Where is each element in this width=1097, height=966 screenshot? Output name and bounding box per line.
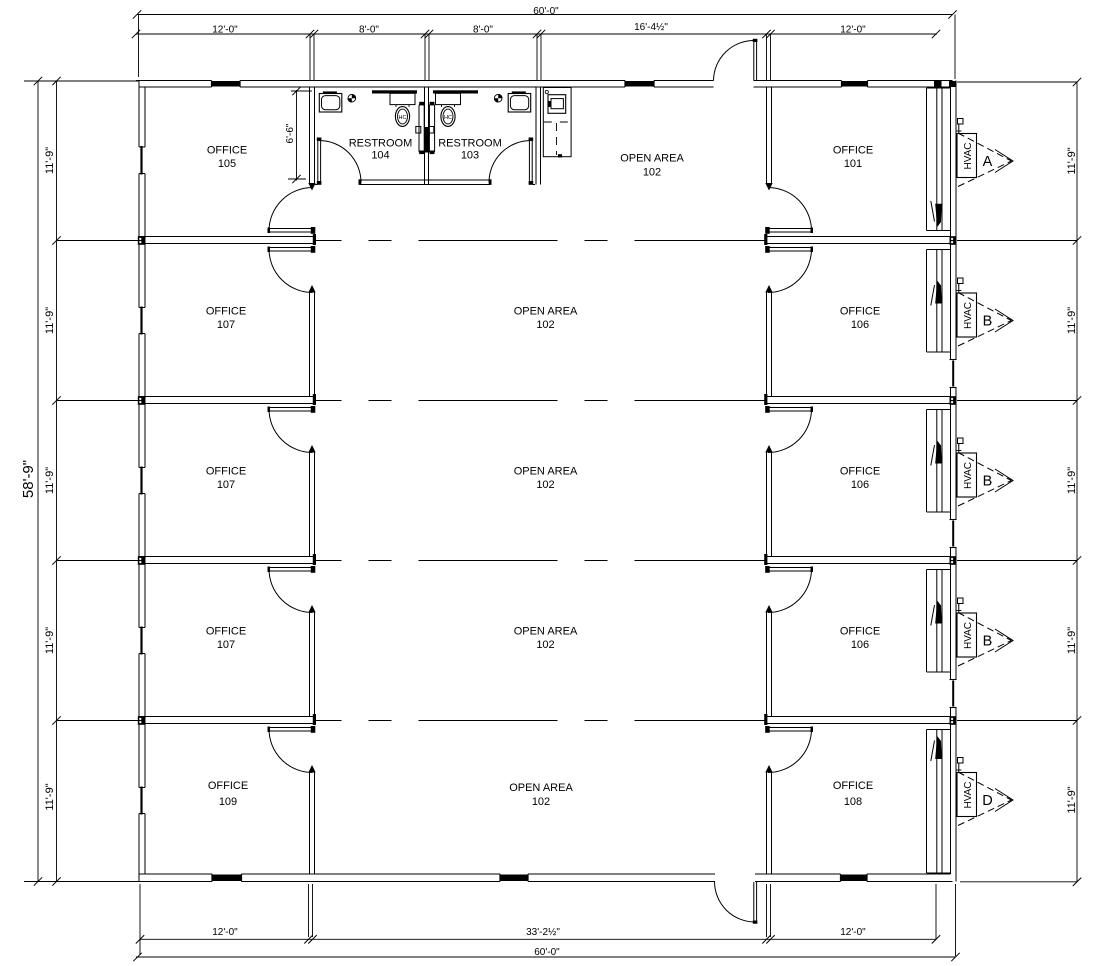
svg-text:OFFICE: OFFICE <box>207 145 247 157</box>
svg-text:OFFICE: OFFICE <box>840 626 880 638</box>
svg-text:102: 102 <box>536 479 554 491</box>
svg-text:11'-9": 11'-9" <box>44 147 56 174</box>
svg-text:8'-0": 8'-0" <box>359 25 379 36</box>
svg-text:103: 103 <box>461 150 479 162</box>
svg-text:106: 106 <box>851 479 869 491</box>
svg-text:B: B <box>983 314 993 330</box>
svg-text:107: 107 <box>217 639 235 651</box>
svg-text:OPEN AREA: OPEN AREA <box>514 306 578 318</box>
svg-text:HVAC: HVAC <box>963 142 974 169</box>
svg-text:102: 102 <box>536 639 554 651</box>
svg-text:105: 105 <box>218 158 236 170</box>
svg-text:106: 106 <box>851 319 869 331</box>
svg-text:11'-9": 11'-9" <box>44 307 56 334</box>
svg-text:HVAC: HVAC <box>963 781 974 808</box>
svg-text:OFFICE: OFFICE <box>840 466 880 478</box>
svg-text:HVAC: HVAC <box>963 462 974 489</box>
svg-text:11'-9": 11'-9" <box>44 783 56 810</box>
svg-text:107: 107 <box>217 479 235 491</box>
svg-text:RESTROOM: RESTROOM <box>438 138 502 150</box>
svg-text:60'-0": 60'-0" <box>534 947 560 958</box>
svg-text:OFFICE: OFFICE <box>208 780 248 792</box>
svg-text:HC: HC <box>444 115 452 121</box>
svg-text:OFFICE: OFFICE <box>206 466 246 478</box>
svg-text:12'-0": 12'-0" <box>212 927 238 938</box>
svg-text:OPEN AREA: OPEN AREA <box>509 782 573 794</box>
svg-text:106: 106 <box>851 639 869 651</box>
svg-text:11'-9": 11'-9" <box>1066 467 1078 494</box>
svg-text:D: D <box>982 793 992 809</box>
svg-text:8'-0": 8'-0" <box>473 25 493 36</box>
svg-text:HVAC: HVAC <box>963 622 974 649</box>
svg-text:11'-9": 11'-9" <box>1066 627 1078 654</box>
svg-text:B: B <box>983 474 993 490</box>
svg-text:16'-4½": 16'-4½" <box>634 22 668 33</box>
svg-text:107: 107 <box>217 319 235 331</box>
svg-text:58'-9": 58'-9" <box>20 460 37 498</box>
svg-text:OFFICE: OFFICE <box>840 306 880 318</box>
svg-text:OFFICE: OFFICE <box>833 780 873 792</box>
svg-text:RESTROOM: RESTROOM <box>349 138 413 150</box>
svg-text:12'-0": 12'-0" <box>840 927 866 938</box>
svg-text:109: 109 <box>219 796 237 808</box>
svg-text:OFFICE: OFFICE <box>206 626 246 638</box>
svg-text:102: 102 <box>532 796 550 808</box>
svg-text:6'-6": 6'-6" <box>285 123 296 143</box>
svg-text:104: 104 <box>371 150 389 162</box>
svg-text:60'-0": 60'-0" <box>533 6 559 17</box>
svg-text:OPEN AREA: OPEN AREA <box>514 466 578 478</box>
svg-text:11'-9": 11'-9" <box>44 627 56 654</box>
svg-text:11'-9": 11'-9" <box>44 467 56 494</box>
svg-text:HC: HC <box>399 115 407 121</box>
svg-text:102: 102 <box>643 167 661 179</box>
svg-text:102: 102 <box>536 319 554 331</box>
svg-text:11'-9": 11'-9" <box>1066 307 1078 334</box>
svg-text:A: A <box>983 154 993 170</box>
svg-text:12'-0": 12'-0" <box>212 25 238 36</box>
svg-text:11'-9": 11'-9" <box>1066 147 1078 174</box>
svg-text:108: 108 <box>844 796 862 808</box>
svg-text:B: B <box>983 634 993 650</box>
svg-text:12'-0": 12'-0" <box>840 25 866 36</box>
svg-text:101: 101 <box>844 158 862 170</box>
svg-text:HVAC: HVAC <box>963 302 974 329</box>
svg-text:OFFICE: OFFICE <box>833 145 873 157</box>
svg-text:OFFICE: OFFICE <box>206 306 246 318</box>
svg-text:OPEN AREA: OPEN AREA <box>620 153 684 165</box>
svg-text:11'-9": 11'-9" <box>1066 786 1078 813</box>
svg-text:33'-2½": 33'-2½" <box>526 927 560 938</box>
svg-text:OPEN AREA: OPEN AREA <box>514 626 578 638</box>
